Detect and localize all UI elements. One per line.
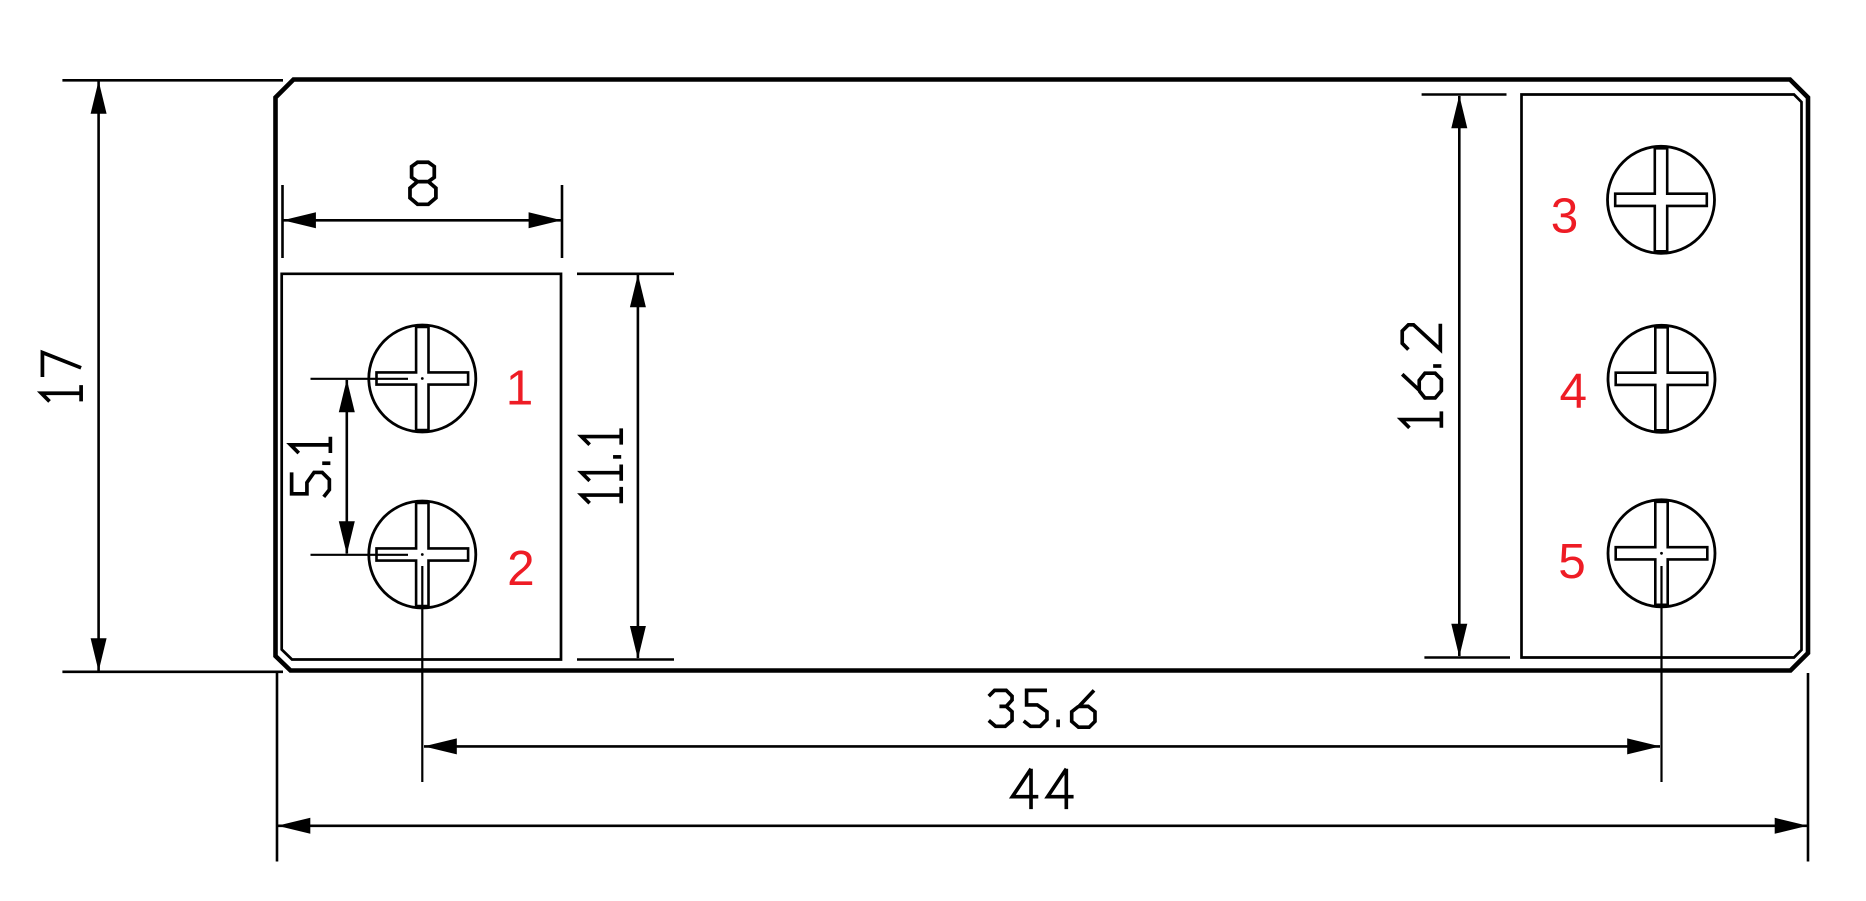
svg-text:2: 2 (507, 541, 535, 596)
svg-text:1: 1 (506, 360, 534, 415)
svg-text:4: 4 (1560, 363, 1588, 418)
svg-text:3: 3 (1551, 188, 1579, 243)
svg-text:5: 5 (1558, 534, 1586, 589)
